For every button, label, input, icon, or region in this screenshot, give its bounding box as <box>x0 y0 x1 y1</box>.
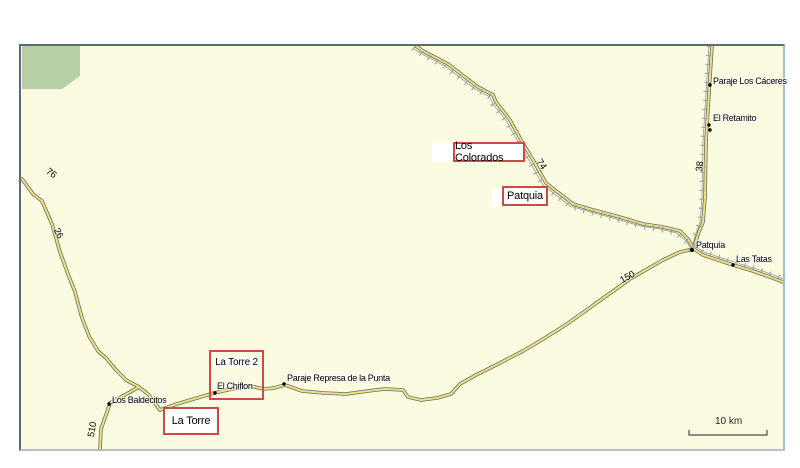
annotation-label-patquia: Patquia <box>507 190 543 202</box>
annotation-box-la-torre: La Torre <box>163 407 219 435</box>
green-area-polygon <box>22 46 80 89</box>
annotation-box-la-torre-2: La Torre 2 <box>209 350 264 400</box>
white-patch-patquia <box>492 187 502 206</box>
annotation-box-los-colorados: Los Colorados <box>453 142 525 162</box>
screenshot-root: { "map": { "description": "Road map of t… <box>0 0 800 468</box>
annotation-box-patquia: Patquia <box>502 186 548 206</box>
dot-patquia-town <box>690 248 694 252</box>
road-76-26-fill <box>22 179 139 387</box>
road-number-38: 38 <box>694 161 706 172</box>
dot-los-baldecitos <box>107 402 110 405</box>
place-dots <box>107 83 734 405</box>
annotation-label-la-torre-2: La Torre 2 <box>213 357 260 368</box>
dot-paraje-represa <box>282 382 285 385</box>
map-viewport[interactable]: Paraje Los Cáceres El Retamito Patquía L… <box>19 44 785 451</box>
white-patch-los-colorados <box>432 143 453 162</box>
place-label-las-tatas: Las Tatas <box>736 254 772 264</box>
dot-el-retamito-1 <box>707 123 710 126</box>
place-label-patquia-town: Patquía <box>696 240 725 250</box>
annotation-label-los-colorados: Los Colorados <box>455 140 523 164</box>
place-label-los-baldecitos: Los Baldecitos <box>112 395 166 405</box>
place-label-paraje-represa: Paraje Represa de la Punta <box>287 373 390 383</box>
dot-el-retamito-2 <box>708 128 711 131</box>
dot-las-tatas <box>731 263 734 266</box>
dot-paraje-los-caceres <box>708 83 711 86</box>
place-label-el-retamito: El Retamito <box>713 113 756 123</box>
scale-bar <box>689 430 767 435</box>
annotation-label-la-torre: La Torre <box>172 415 211 427</box>
place-label-paraje-los-caceres: Paraje Los Cáceres <box>713 76 787 86</box>
road-76-26-casing <box>22 179 139 387</box>
scale-bar-label: 10 km <box>715 416 742 427</box>
map-canvas[interactable] <box>21 46 783 449</box>
